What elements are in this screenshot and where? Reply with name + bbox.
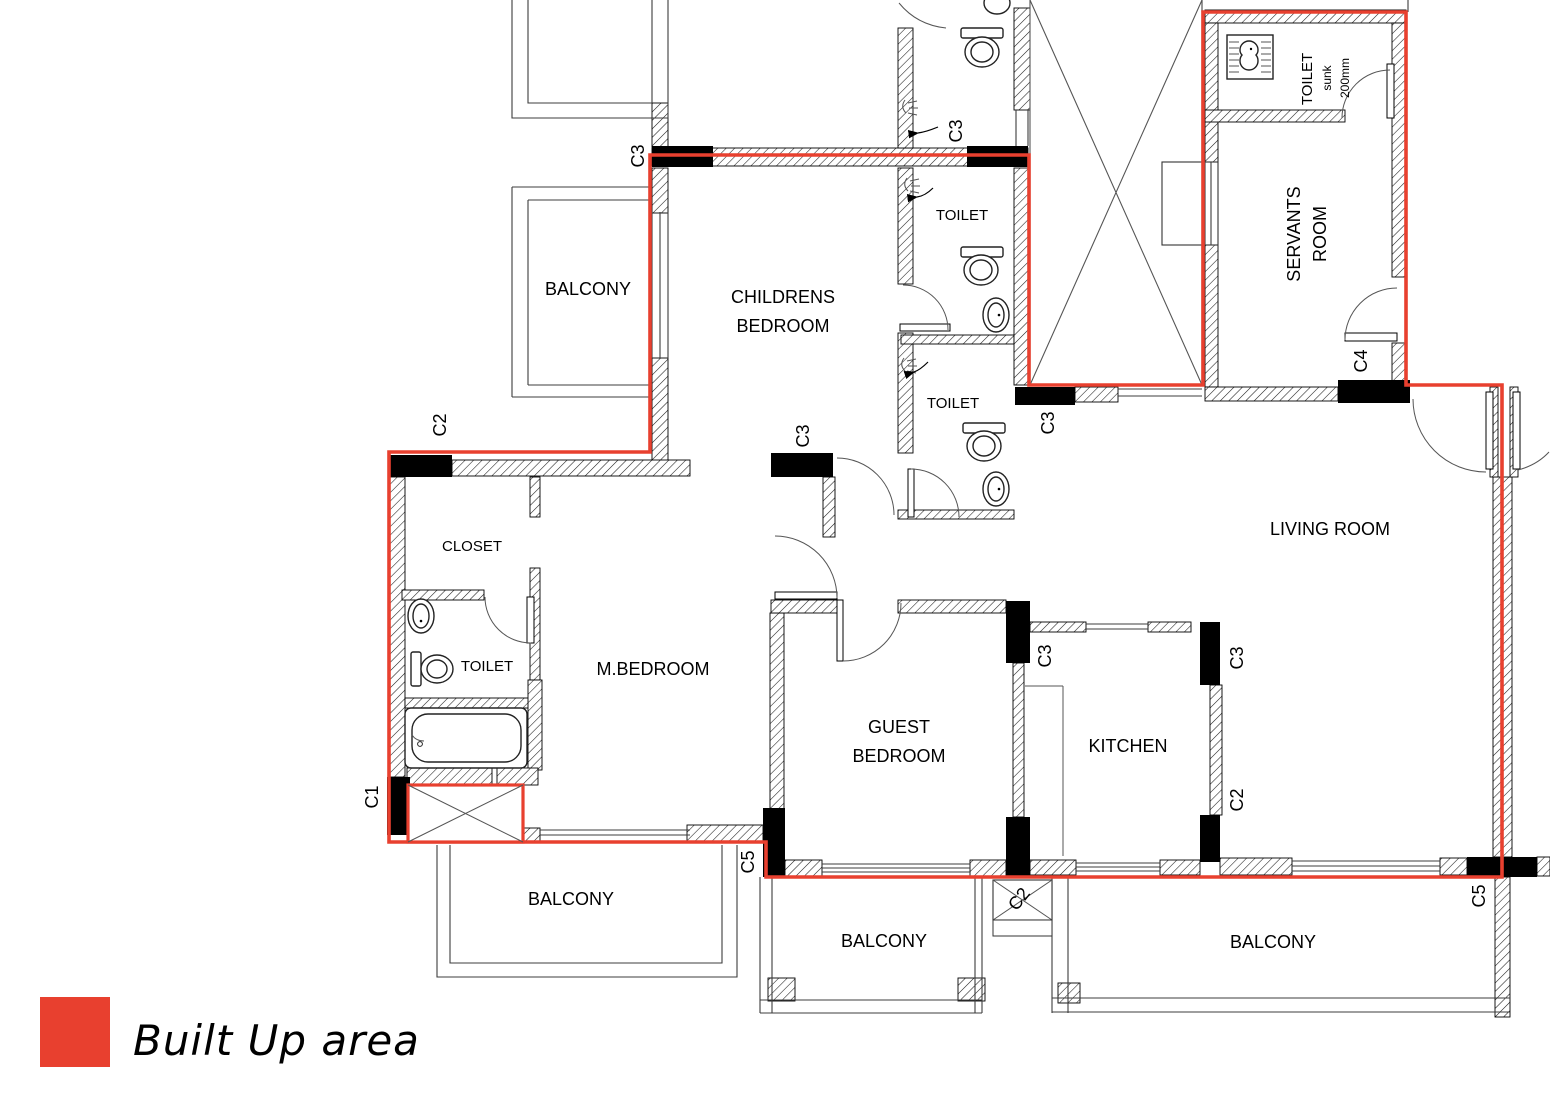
marker-c3-toilet-top: C3 <box>946 119 966 142</box>
door-arc <box>899 3 946 28</box>
marker-c3-hall: C3 <box>793 424 813 447</box>
label-living-room: LIVING ROOM <box>1270 519 1390 539</box>
label-servants-1: SERVANTS <box>1284 186 1304 281</box>
label-servants-toilet: TOILET <box>1299 53 1316 105</box>
marker-c5-left: C5 <box>738 850 758 873</box>
label-balcony-bottom-left: BALCONY <box>528 889 614 909</box>
label-childrens-1: CHILDRENS <box>731 287 835 307</box>
marker-c2-left: C2 <box>430 413 450 436</box>
floor-plan-drawing: BALCONY CHILDRENS BEDROOM TOILET TOILET … <box>0 0 1550 1098</box>
door-leaf <box>1387 64 1394 118</box>
room-labels: BALCONY CHILDRENS BEDROOM TOILET TOILET … <box>442 53 1390 952</box>
sink-icon <box>984 0 1010 14</box>
marker-c1: C1 <box>362 785 382 808</box>
wc-icon <box>963 423 1005 461</box>
floor-plan-page: BALCONY CHILDRENS BEDROOM TOILET TOILET … <box>0 0 1550 1098</box>
wc-icon <box>961 247 1003 285</box>
legend-built-up-swatch <box>40 997 110 1067</box>
wc-icon <box>411 652 453 686</box>
label-kitchen: KITCHEN <box>1088 736 1167 756</box>
c3-arrow <box>918 127 938 133</box>
marker-c3-top-left: C3 <box>628 144 648 167</box>
sink-icon <box>983 472 1009 506</box>
label-toilet-lower: TOILET <box>927 395 979 412</box>
marker-c5-right: C5 <box>1469 884 1489 907</box>
label-servants-toilet-sunk: sunk <box>1320 64 1334 90</box>
bathtub-icon <box>405 708 527 768</box>
door-leaf <box>527 597 534 643</box>
washbasin-icon <box>1227 35 1273 79</box>
door-leaf <box>900 324 950 331</box>
door-arc <box>1518 452 1549 470</box>
door-arc <box>775 536 837 598</box>
door-arc <box>837 458 894 515</box>
marker-c3-shaft: C3 <box>1038 411 1058 434</box>
label-toilet-master: TOILET <box>461 658 513 675</box>
wc-icon <box>961 28 1003 67</box>
door-leaf <box>908 469 914 517</box>
label-master-bedroom: M.BEDROOM <box>596 659 709 679</box>
marker-c2-kitchen: C2 <box>1227 788 1247 811</box>
sink-icon <box>983 298 1009 332</box>
label-balcony-bottom-right: BALCONY <box>1230 932 1316 952</box>
door-arc <box>485 597 531 643</box>
marker-c3-kitchen-right: C3 <box>1227 646 1247 669</box>
door-leaf <box>1513 392 1520 469</box>
legend: Built Up area <box>40 997 420 1067</box>
legend-built-up-label: Built Up area <box>133 1016 420 1065</box>
door-arc <box>1413 399 1486 472</box>
marker-c4: C4 <box>1351 349 1371 372</box>
door-leaf <box>837 600 843 661</box>
marker-c3-kitchen-left: C3 <box>1035 644 1055 667</box>
label-guest-1: GUEST <box>868 717 930 737</box>
door-arc <box>903 285 948 330</box>
door-arc <box>1345 288 1397 340</box>
label-closet: CLOSET <box>442 538 502 555</box>
door-leaf <box>1486 392 1493 469</box>
door-leaf <box>775 592 837 599</box>
label-balcony-bottom-center: BALCONY <box>841 931 927 951</box>
door-leaf <box>1345 333 1397 341</box>
door-arc <box>843 603 901 661</box>
label-servants-2: ROOM <box>1310 206 1330 262</box>
label-guest-2: BEDROOM <box>852 746 945 766</box>
lift-box <box>1162 162 1218 245</box>
label-childrens-2: BEDROOM <box>736 316 829 336</box>
label-toilet-mid: TOILET <box>936 207 988 224</box>
label-servants-toilet-depth: 200mm <box>1338 58 1352 98</box>
label-balcony-top-left: BALCONY <box>545 279 631 299</box>
sink-icon <box>408 599 434 633</box>
duct-box <box>408 785 523 842</box>
shaft-void <box>1030 0 1218 385</box>
